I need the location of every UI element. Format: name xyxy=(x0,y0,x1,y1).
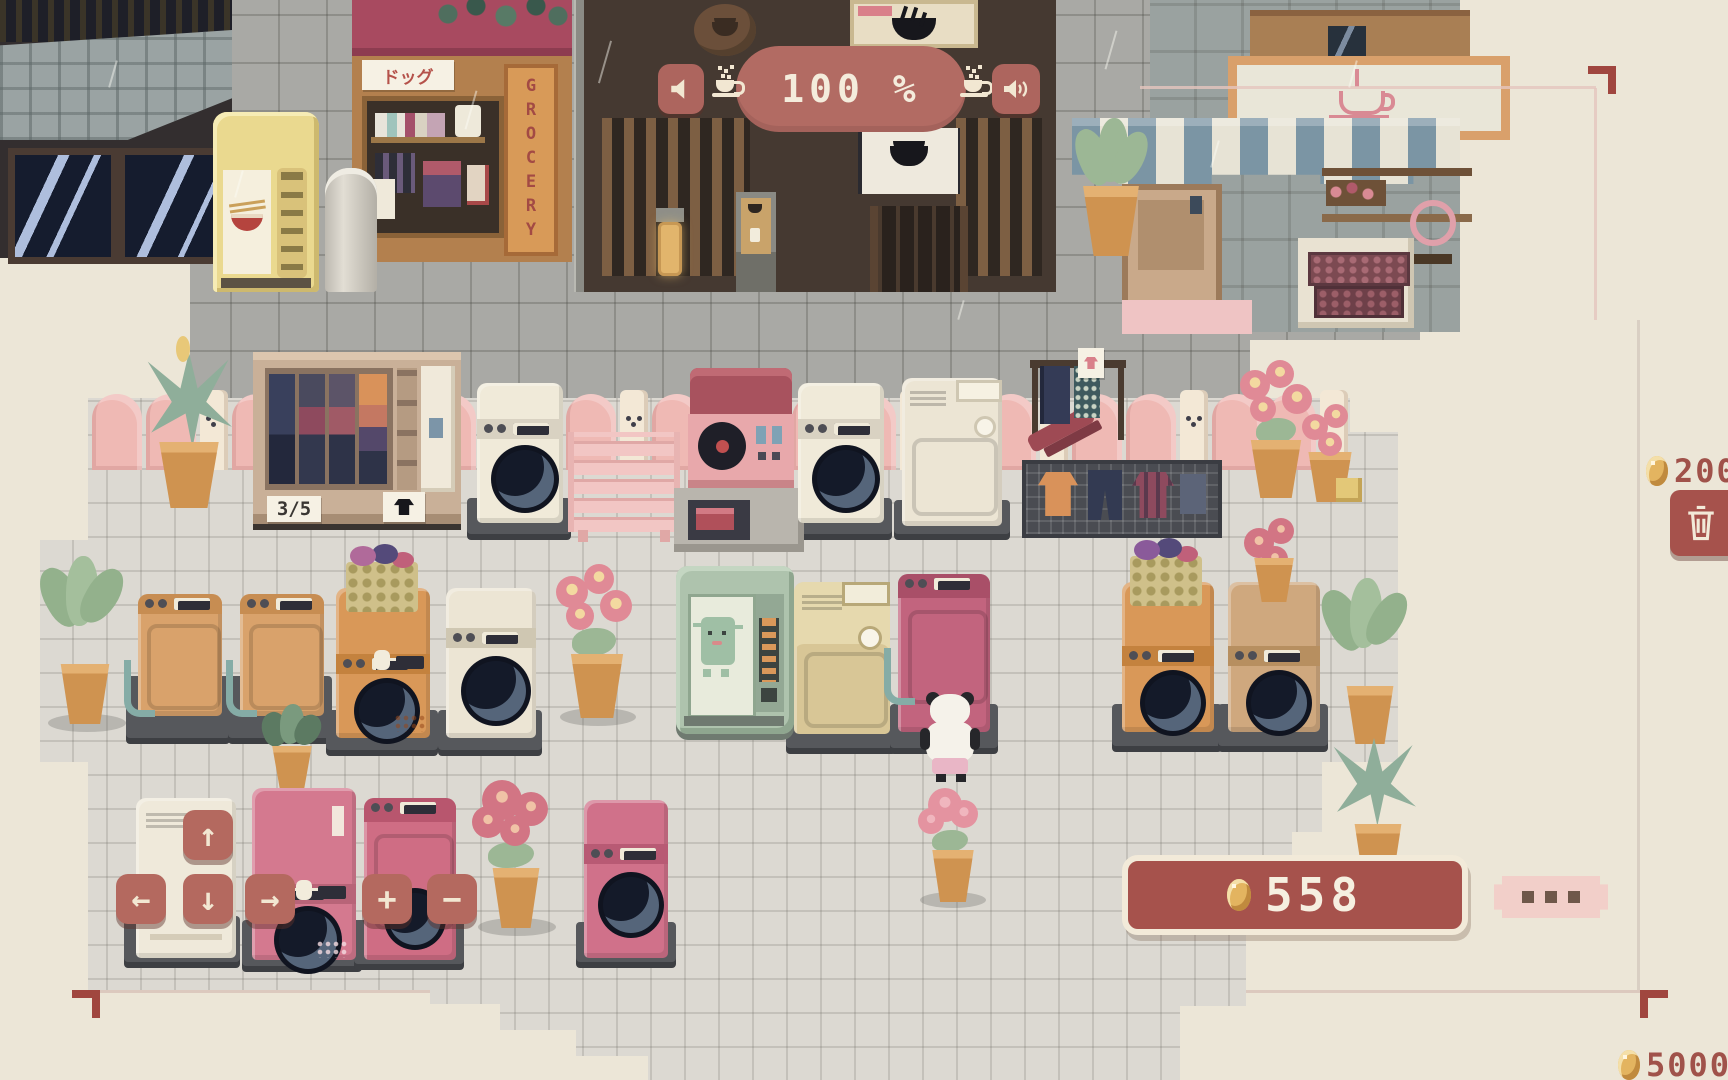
grocery-poster-purple xyxy=(423,161,461,207)
drying-rack-pink[interactable] xyxy=(568,432,680,532)
grocery-window xyxy=(362,96,504,238)
up-arrow-icon: ↑ xyxy=(198,816,217,854)
cafe xyxy=(1150,0,1506,332)
coffee-stand-sign xyxy=(736,192,776,292)
shelf-wreath xyxy=(1410,200,1456,246)
trash-icon xyxy=(1684,504,1718,542)
lot-corner-bottom-right xyxy=(1640,990,1668,1018)
vinyl-label xyxy=(716,440,729,453)
washing-machine-cream[interactable] xyxy=(446,588,536,738)
speaker-waves-icon xyxy=(1002,76,1030,102)
basket-clothes xyxy=(1134,540,1160,560)
shelf-door-label xyxy=(429,418,443,438)
coffee-steam xyxy=(1355,69,1359,87)
panda-body xyxy=(926,722,974,762)
down-arrow-icon: ↓ xyxy=(198,880,217,918)
open-lid xyxy=(956,380,1002,402)
music-toggle-button[interactable] xyxy=(658,64,704,114)
hanging-clothes xyxy=(269,374,295,484)
lot-boundary-line-right xyxy=(1637,320,1640,992)
lantern-cap xyxy=(656,208,684,222)
more-options-button[interactable] xyxy=(1494,876,1608,918)
grocery-goods-bottles xyxy=(375,113,445,137)
wallet-balance: 558 xyxy=(1265,868,1363,922)
washing-machine-white[interactable] xyxy=(798,383,884,523)
wallet-display: 558 xyxy=(1122,855,1468,935)
cassette-slot xyxy=(688,500,750,540)
record-switches xyxy=(756,426,782,444)
vending-outlet xyxy=(761,688,777,702)
left-arrow-icon: ← xyxy=(131,880,150,918)
coffee-cup-handle xyxy=(1381,93,1395,111)
vending-base xyxy=(684,716,784,726)
rack-post xyxy=(1032,360,1038,440)
detergent-mascot xyxy=(701,617,735,665)
cassette xyxy=(696,508,734,530)
panda-arm xyxy=(920,728,930,750)
cafe-upper-window xyxy=(1328,26,1366,56)
ramen-poster-top xyxy=(850,0,978,48)
minus-icon: − xyxy=(442,880,461,918)
hanging-clothes xyxy=(329,374,355,484)
open-lid xyxy=(842,582,890,606)
lot-boundary-line-right-upper xyxy=(1594,88,1597,320)
grocery-awning-sign: ドッグ xyxy=(362,60,454,90)
rack-leg xyxy=(660,530,670,542)
lantern-glow xyxy=(658,222,682,276)
ramen-shop xyxy=(584,0,1056,292)
ramen-vending-machine[interactable] xyxy=(213,112,319,292)
mascot-feet xyxy=(703,669,711,677)
yucca-bloom xyxy=(176,336,190,362)
grocery-shop: ドッグ GROCERY xyxy=(352,0,572,262)
top-load-machine-cream[interactable] xyxy=(902,378,1002,526)
remove-button[interactable]: − xyxy=(427,874,477,924)
vending-door xyxy=(688,594,756,718)
ramen-wood-slats-right xyxy=(956,118,1042,276)
washing-machine-white[interactable] xyxy=(477,383,563,523)
sell-offer: 200 xyxy=(1646,452,1728,490)
poster-accent xyxy=(858,6,892,16)
washing-machine-pink[interactable] xyxy=(584,800,668,958)
hanging-clothes xyxy=(359,374,387,484)
panda-foot xyxy=(936,774,946,782)
detergent-vending-machine[interactable] xyxy=(676,566,794,734)
trash-button[interactable] xyxy=(1670,490,1728,556)
ellipsis-icon xyxy=(1522,891,1534,903)
shirt-tag xyxy=(383,492,425,522)
vending-base xyxy=(221,278,311,288)
machine-label xyxy=(332,806,344,836)
laid-shirt-orange xyxy=(1038,472,1078,516)
ramen-noren-curtain xyxy=(858,128,960,194)
sfx-toggle-button[interactable] xyxy=(992,64,1040,114)
left-building xyxy=(0,0,232,258)
plus-icon: + xyxy=(377,880,396,918)
coffee-cup-icon xyxy=(1339,91,1385,115)
cafe-door-sign xyxy=(1190,196,1202,214)
record-stand xyxy=(674,488,804,552)
ramen-bowl-icon xyxy=(892,18,936,40)
volume-value: 100 % xyxy=(781,67,920,111)
capacity-value: 3/5 xyxy=(277,498,311,520)
coffee-cup-icon xyxy=(748,204,762,213)
ramen-bowl-icon xyxy=(890,146,928,166)
move-right-button[interactable]: → xyxy=(245,874,295,924)
record-body xyxy=(688,414,794,490)
vending-selector-column xyxy=(277,168,307,278)
ramen-bowl-icon xyxy=(231,214,263,231)
clothes-storage-shelf[interactable]: 3/5 xyxy=(253,352,461,524)
volume-display: 100 % xyxy=(736,46,966,132)
rack-leg xyxy=(578,530,588,542)
lot-corner-top-right xyxy=(1588,66,1616,94)
coffee-cup-icon xyxy=(712,64,744,104)
basket-clothes xyxy=(350,546,376,566)
shirt-icon xyxy=(394,499,414,515)
vending-slot xyxy=(759,618,779,682)
record-lid xyxy=(690,368,792,416)
capacity-tag: 3/5 xyxy=(267,496,321,522)
lot-boundary-line-top xyxy=(1140,86,1596,89)
yellow-crate xyxy=(1336,478,1362,502)
fence-post xyxy=(1180,390,1208,470)
machine-drawer-line xyxy=(150,934,222,940)
game-scene: ドッグ GROCERY xyxy=(0,0,1728,1080)
fence-arch xyxy=(1126,394,1176,470)
left-building-window xyxy=(8,148,118,264)
sell-price: 200 xyxy=(1674,452,1728,490)
lot-corner-bottom-left xyxy=(72,990,100,1018)
coin-icon xyxy=(1618,1050,1640,1080)
coin-icon xyxy=(1646,456,1668,486)
grocery-poster-red xyxy=(467,165,489,205)
grocery-awning-sign-text: ドッグ xyxy=(383,63,434,88)
left-building-roof xyxy=(0,30,232,140)
hung-jacket-navy xyxy=(1040,366,1070,424)
record-dial xyxy=(758,452,766,460)
drain-pipe xyxy=(574,0,584,292)
expansion-price: 5000 xyxy=(1646,1046,1728,1080)
chopsticks-icon xyxy=(229,200,265,208)
laid-pants-navy xyxy=(1088,470,1122,520)
ramen-round-sign xyxy=(694,4,756,56)
panda-shorts xyxy=(932,758,968,774)
vending-display-panel xyxy=(223,170,271,274)
shirt-icon xyxy=(1084,357,1098,369)
grocery-vertical-sign-text: GROCERY xyxy=(521,76,541,244)
panda-character xyxy=(918,690,982,794)
top-load-machine-tan[interactable] xyxy=(240,594,324,716)
speaker-muted-icon xyxy=(668,76,694,102)
clothes-grate-mat[interactable] xyxy=(1022,460,1222,538)
cafe-door xyxy=(1122,184,1222,306)
grocery-shelf-top xyxy=(371,137,485,143)
laid-shirt-plaid xyxy=(1132,472,1174,518)
coffee-stand-poster xyxy=(741,198,771,254)
move-up-button[interactable]: ↑ xyxy=(183,810,233,860)
panda-foot xyxy=(956,774,966,782)
right-arrow-icon: → xyxy=(260,880,279,918)
laundry-basket xyxy=(346,562,418,612)
top-load-machine-khaki[interactable] xyxy=(794,582,890,734)
metal-bin xyxy=(325,168,377,292)
shelf-side-rack xyxy=(397,368,417,490)
ramen-entry-door xyxy=(870,206,968,292)
panda-arm xyxy=(970,728,980,750)
laundry-basket xyxy=(1130,556,1202,606)
coffee-cup-icon xyxy=(750,228,760,242)
cafe-pink-skirt xyxy=(1122,300,1252,334)
rack-post xyxy=(1118,360,1124,440)
move-left-button[interactable]: ← xyxy=(116,874,166,924)
shelf-flowers xyxy=(1326,180,1386,206)
shelf-clothes-area xyxy=(265,368,393,490)
move-down-button[interactable]: ↓ xyxy=(183,874,233,924)
ramen-bowl-icon xyxy=(712,22,738,36)
detergent-hole xyxy=(974,416,996,438)
top-load-machine-tan[interactable] xyxy=(138,594,222,716)
laid-towel xyxy=(1180,474,1206,514)
grocery-roof-foliage xyxy=(432,0,572,34)
shelf-door xyxy=(421,366,455,492)
cafe-berry-crate xyxy=(1308,252,1410,286)
coin-icon xyxy=(1227,879,1251,911)
grocery-vertical-sign: GROCERY xyxy=(504,64,558,256)
vending-column xyxy=(756,594,784,712)
coffee-cup-icon xyxy=(960,64,992,104)
hanging-shirt-tag xyxy=(1078,348,1104,378)
fence-arch xyxy=(92,394,142,470)
add-button[interactable]: + xyxy=(362,874,412,924)
hanging-clothes xyxy=(299,374,325,484)
cafe-berry-crate xyxy=(1314,286,1404,318)
detergent-hole xyxy=(858,626,882,650)
expansion-offer: 5000 xyxy=(1618,1046,1728,1080)
ramen-lantern xyxy=(652,208,688,292)
